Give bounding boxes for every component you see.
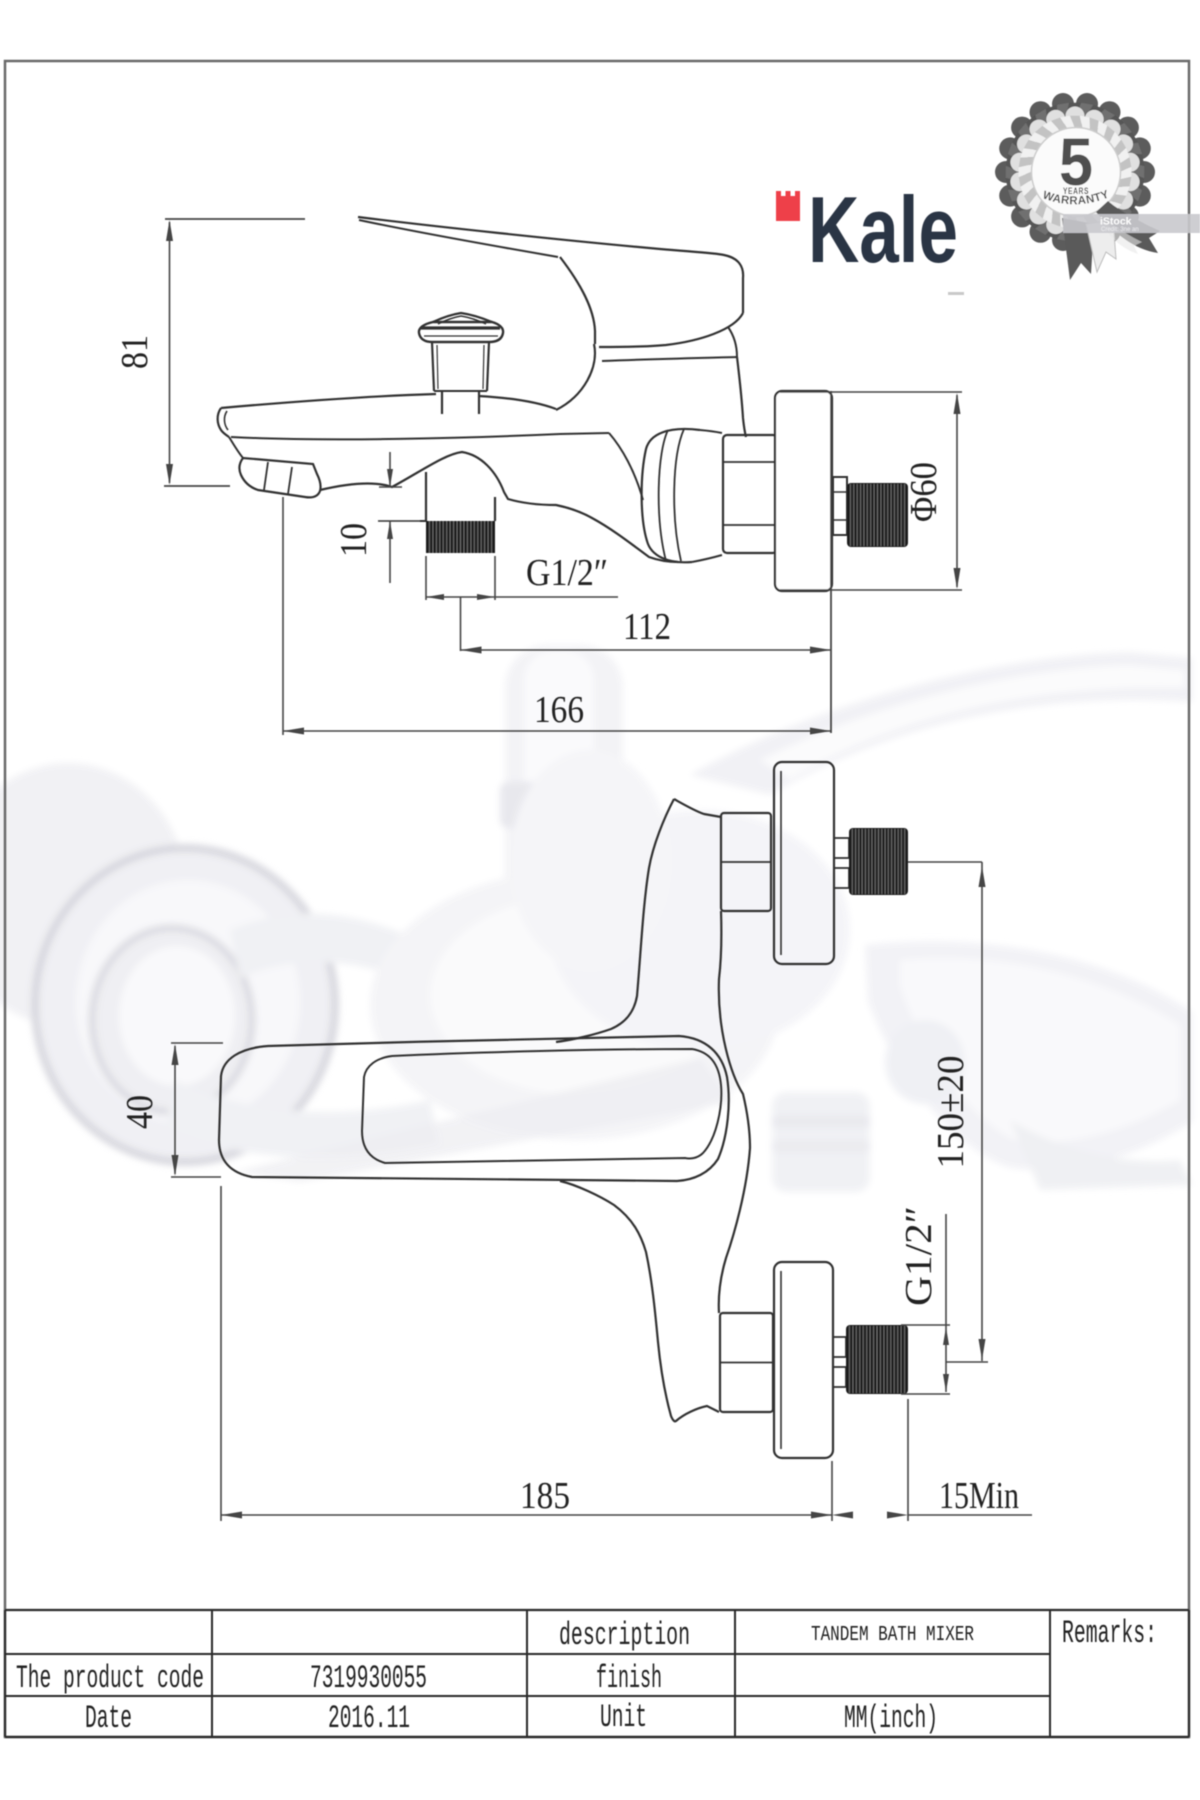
svg-text:166: 166 — [534, 689, 584, 731]
svg-text:185: 185 — [520, 1475, 570, 1517]
svg-text:Φ60: Φ60 — [903, 462, 945, 522]
svg-text:iStock: iStock — [1100, 216, 1132, 228]
svg-text:2016.11: 2016.11 — [328, 1700, 410, 1737]
svg-text:TANDEM BATH MIXER: TANDEM BATH MIXER — [811, 1624, 974, 1647]
svg-text:150±20: 150±20 — [930, 1056, 972, 1169]
svg-text:The product code: The product code — [16, 1660, 204, 1697]
svg-text:G1/2″: G1/2″ — [898, 1206, 940, 1306]
svg-text:112: 112 — [623, 606, 671, 648]
svg-text:81: 81 — [114, 335, 156, 369]
svg-text:YEARS: YEARS — [1063, 186, 1089, 196]
svg-text:Kale: Kale — [808, 177, 958, 282]
svg-text:Date: Date — [85, 1700, 132, 1737]
svg-text:40: 40 — [119, 1095, 161, 1129]
svg-text:7319930055: 7319930055 — [310, 1660, 427, 1697]
svg-text:finish: finish — [596, 1660, 662, 1697]
svg-text:10: 10 — [333, 523, 375, 557]
svg-text:Unit: Unit — [600, 1699, 647, 1736]
svg-text:Credit: 3ne an: Credit: 3ne an — [1101, 227, 1139, 233]
svg-text:15Min: 15Min — [939, 1475, 1019, 1517]
svg-text:Remarks:: Remarks: — [1062, 1615, 1157, 1652]
svg-text:G1/2″: G1/2″ — [526, 552, 608, 594]
svg-text:MM(inch): MM(inch) — [844, 1700, 938, 1737]
svg-text:description: description — [559, 1617, 690, 1654]
